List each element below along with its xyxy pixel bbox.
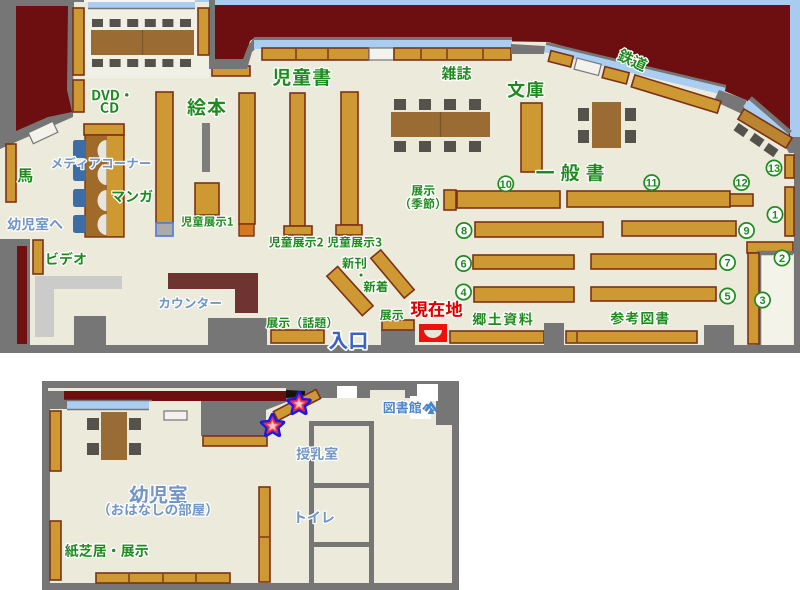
svg-text:5: 5 xyxy=(724,291,730,303)
svg-text:10: 10 xyxy=(500,179,512,191)
svg-text:2: 2 xyxy=(779,253,785,265)
svg-text:4: 4 xyxy=(460,287,467,299)
svg-text:12: 12 xyxy=(735,178,747,190)
svg-text:6: 6 xyxy=(460,259,466,271)
svg-text:8: 8 xyxy=(461,226,467,238)
svg-text:13: 13 xyxy=(768,163,780,175)
svg-text:9: 9 xyxy=(743,226,749,238)
svg-text:11: 11 xyxy=(646,178,658,190)
svg-text:1: 1 xyxy=(772,210,778,222)
svg-text:7: 7 xyxy=(724,258,730,270)
svg-text:3: 3 xyxy=(759,295,765,307)
